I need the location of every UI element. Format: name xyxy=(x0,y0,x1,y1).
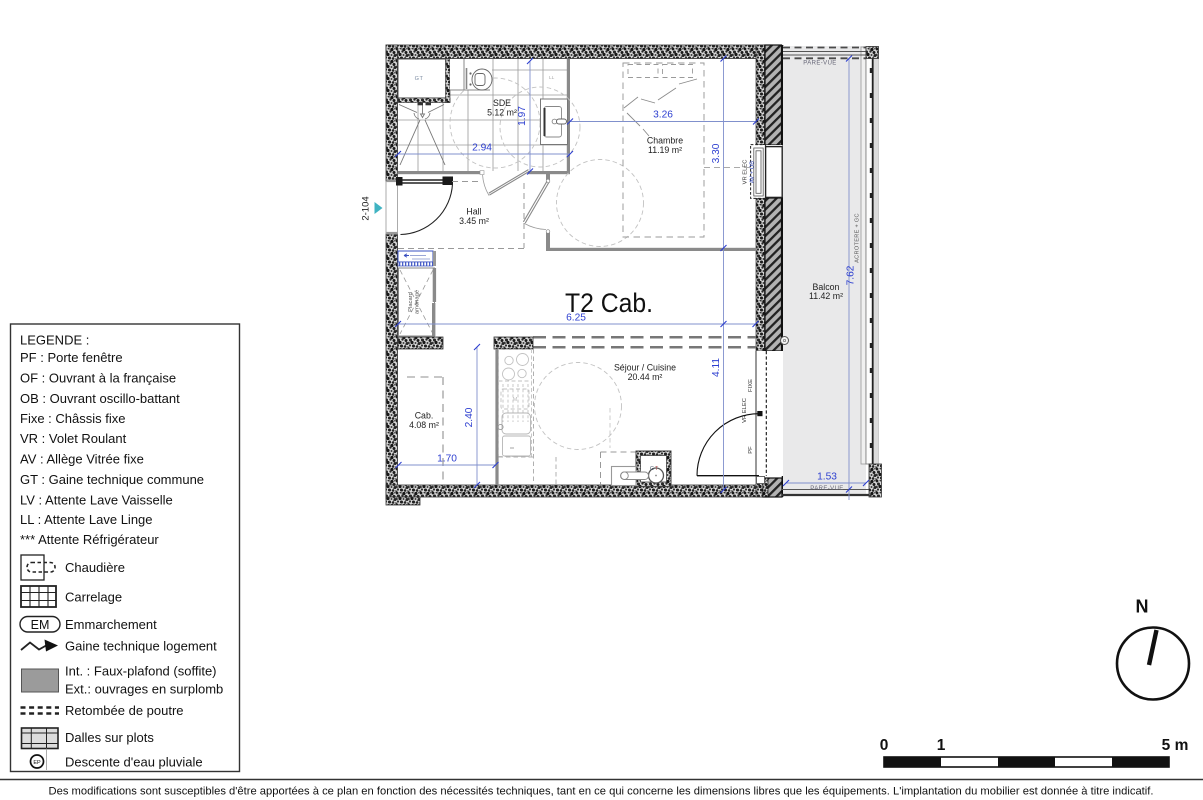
svg-text:T2 Cab.: T2 Cab. xyxy=(565,288,653,318)
svg-text:PF : Porte fenêtre: PF : Porte fenêtre xyxy=(20,350,123,365)
svg-text:Cab.: Cab. xyxy=(415,411,434,421)
svg-text:OF : Ouvrant à la française: OF : Ouvrant à la française xyxy=(20,371,176,386)
svg-text:AV + OB: AV + OB xyxy=(750,161,756,183)
svg-text:Chambre: Chambre xyxy=(647,136,683,146)
svg-text:SDE: SDE xyxy=(493,98,511,108)
svg-text:Chaudière: Chaudière xyxy=(65,560,125,575)
svg-text:Carrelage: Carrelage xyxy=(65,590,122,605)
svg-text:4.08 m²: 4.08 m² xyxy=(409,420,439,430)
svg-text:3.26: 3.26 xyxy=(653,110,673,121)
svg-text:5.12 m²: 5.12 m² xyxy=(487,108,517,118)
svg-text:20.44 m²: 20.44 m² xyxy=(628,372,663,382)
svg-text:OB : Ouvrant oscillo-battant: OB : Ouvrant oscillo-battant xyxy=(20,391,180,406)
svg-text:11.19 m²: 11.19 m² xyxy=(648,145,682,155)
svg-text:ACROTERE + GC: ACROTERE + GC xyxy=(855,213,861,263)
svg-text:M: M xyxy=(513,397,518,403)
svg-text:LL: LL xyxy=(549,75,555,81)
svg-text:Gaine technique logement: Gaine technique logement xyxy=(65,639,217,654)
svg-text:Hall: Hall xyxy=(466,207,481,217)
svg-text:N: N xyxy=(1136,597,1149,617)
svg-text:Des modifications sont suscept: Des modifications sont susceptibles d'êt… xyxy=(49,786,1154,798)
svg-text:4.11: 4.11 xyxy=(711,358,722,377)
svg-text:PARE-VUE: PARE-VUE xyxy=(803,61,836,67)
svg-text:G: G xyxy=(650,466,654,472)
svg-text:EM: EM xyxy=(31,618,50,632)
svg-text:VR : Volet Roulant: VR : Volet Roulant xyxy=(20,431,127,446)
svg-text:PF: PF xyxy=(748,446,754,454)
svg-text:GT : Gaine technique commune: GT : Gaine technique commune xyxy=(20,472,204,487)
svg-text:PARE-VUE: PARE-VUE xyxy=(810,486,843,492)
svg-text:2.94: 2.94 xyxy=(472,143,492,154)
svg-text:0: 0 xyxy=(880,737,889,754)
svg-text:LV : Attente Lave Vaisselle: LV : Attente Lave Vaisselle xyxy=(20,493,173,508)
svg-text:*** Attente Réfrigérateur: *** Attente Réfrigérateur xyxy=(20,532,159,547)
svg-text:2.40: 2.40 xyxy=(464,407,475,427)
svg-text:AV : Allège Vitrée fixe: AV : Allège Vitrée fixe xyxy=(20,452,144,467)
svg-text:Descente d'eau pluviale: Descente d'eau pluviale xyxy=(65,755,203,770)
svg-text:Placard: Placard xyxy=(408,292,414,312)
svg-text:Ext.: ouvrages en surplomb: Ext.: ouvrages en surplomb xyxy=(65,682,223,697)
svg-text:FIXE: FIXE xyxy=(748,379,754,392)
svg-text:3.45 m²: 3.45 m² xyxy=(459,216,489,226)
svg-text:EP: EP xyxy=(33,760,41,766)
svg-text:VR ELEC: VR ELEC xyxy=(742,398,748,423)
svg-text:2-104: 2-104 xyxy=(361,196,372,220)
svg-text:Fixe : Châssis fixe: Fixe : Châssis fixe xyxy=(20,411,125,426)
svg-text:VR ELEC: VR ELEC xyxy=(743,160,749,185)
svg-text:Retombée de poutre: Retombée de poutre xyxy=(65,703,184,718)
svg-text:Séjour / Cuisine: Séjour / Cuisine xyxy=(614,363,676,373)
svg-text:LL : Attente Lave Linge: LL : Attente Lave Linge xyxy=(20,512,153,527)
svg-text:aménagé: aménagé xyxy=(415,290,421,314)
svg-text:7.62: 7.62 xyxy=(846,265,857,285)
svg-text:Emmarchement: Emmarchement xyxy=(65,617,157,632)
svg-text:LEGENDE :: LEGENDE : xyxy=(20,333,89,348)
svg-text:Dalles sur plots: Dalles sur plots xyxy=(65,730,154,745)
svg-text:3.30: 3.30 xyxy=(711,143,722,163)
svg-text:Int. : Faux-plafond (soffite): Int. : Faux-plafond (soffite) xyxy=(65,664,217,679)
svg-text:5 m: 5 m xyxy=(1162,737,1189,754)
svg-text:1.53: 1.53 xyxy=(817,472,837,483)
svg-text:1: 1 xyxy=(937,737,946,754)
svg-text:1.97: 1.97 xyxy=(517,106,528,126)
svg-text:1.70: 1.70 xyxy=(437,454,457,465)
svg-text:11.42 m²: 11.42 m² xyxy=(809,291,843,301)
svg-text:GT: GT xyxy=(415,76,424,82)
